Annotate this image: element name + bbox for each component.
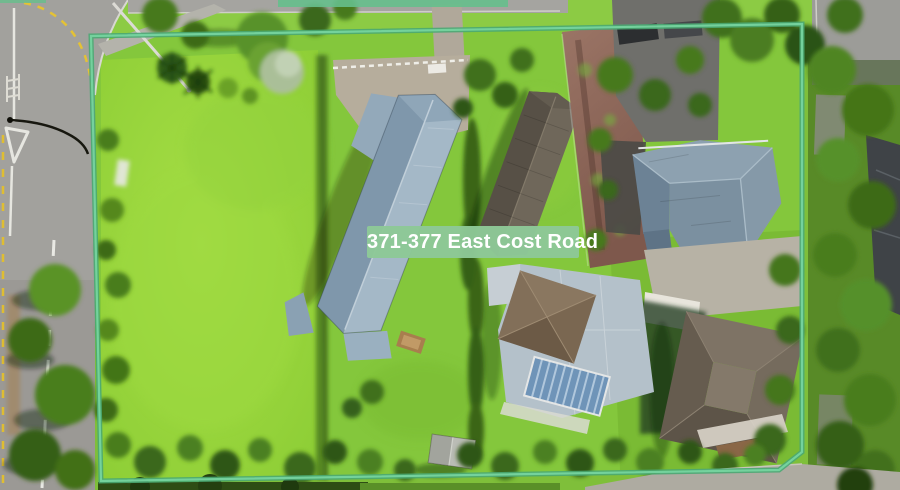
boundary-segment-corner — [0, 0, 46, 3]
address-badge: 371-377 East Cost Road — [367, 226, 579, 258]
parked-white-vehicle — [428, 63, 447, 73]
aerial-photo: 371-377 East Cost Road — [0, 0, 900, 490]
boundary-segment-top — [278, 0, 508, 7]
address-label: 371-377 East Cost Road — [367, 231, 598, 253]
